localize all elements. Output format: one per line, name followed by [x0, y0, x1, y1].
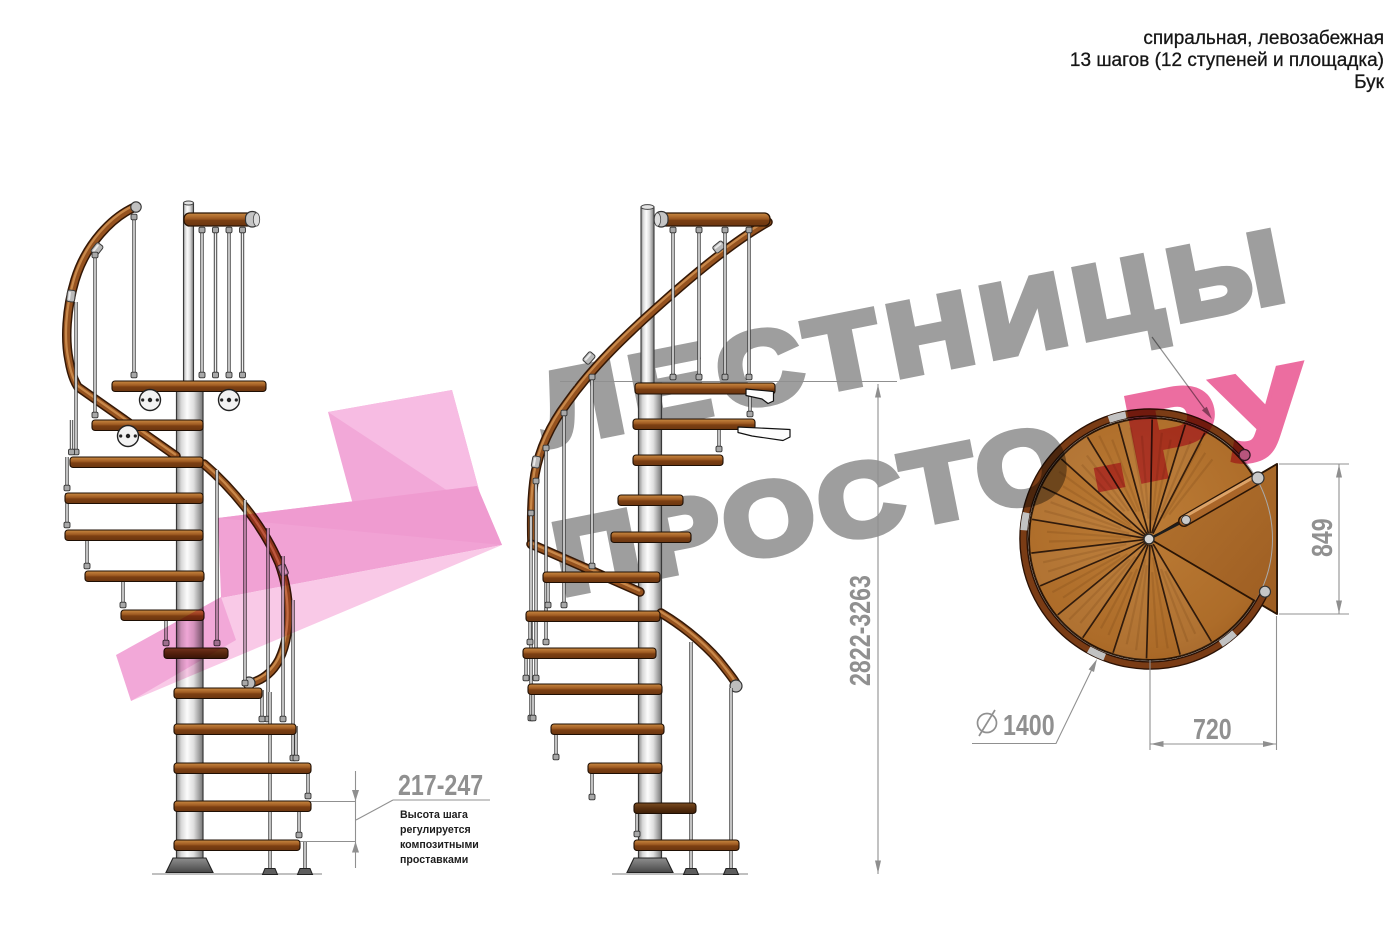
svg-text:композитными: композитными [400, 839, 479, 851]
svg-text:217-247: 217-247 [398, 768, 483, 801]
svg-text:849: 849 [1305, 518, 1338, 557]
svg-text:2822-3263: 2822-3263 [843, 575, 876, 686]
svg-text:спиральная, левозабежная: спиральная, левозабежная [1143, 28, 1384, 49]
svg-text:Бук: Бук [1354, 72, 1385, 93]
svg-text:13 шагов (12 ступеней и площад: 13 шагов (12 ступеней и площадка) [1070, 50, 1384, 71]
svg-text:регулируется: регулируется [400, 824, 471, 836]
svg-text:720: 720 [1193, 712, 1232, 745]
svg-text:Высота шага: Высота шага [400, 809, 468, 821]
svg-text:1400: 1400 [1003, 708, 1055, 741]
svg-text:проставками: проставками [400, 854, 468, 866]
